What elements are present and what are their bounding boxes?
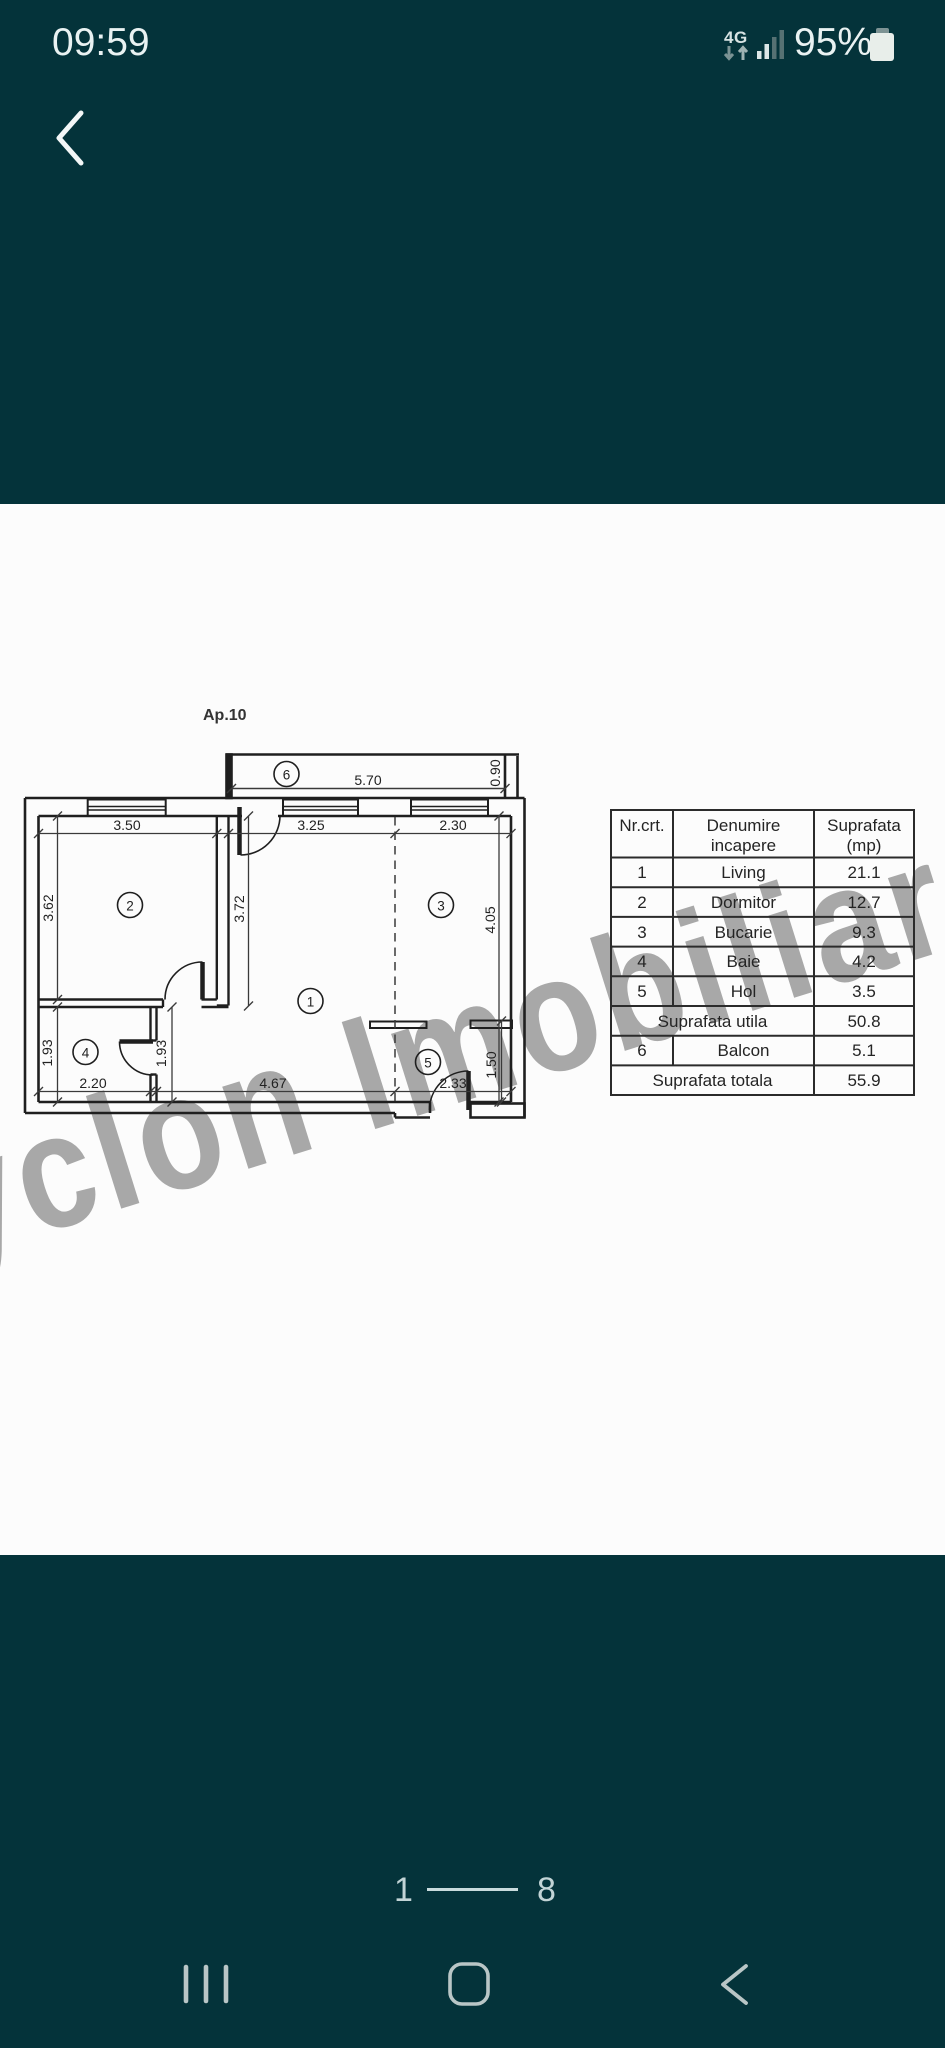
svg-text:4.2: 4.2 xyxy=(852,952,876,971)
svg-text:Bucarie: Bucarie xyxy=(715,923,773,942)
svg-text:Suprafata: Suprafata xyxy=(827,816,901,835)
svg-text:5.1: 5.1 xyxy=(852,1041,876,1060)
svg-text:1: 1 xyxy=(307,995,315,1010)
svg-text:21.1: 21.1 xyxy=(847,863,880,882)
svg-text:Living: Living xyxy=(721,863,765,882)
svg-text:4.05: 4.05 xyxy=(482,906,498,933)
svg-text:2: 2 xyxy=(126,899,134,914)
svg-text:3.50: 3.50 xyxy=(113,817,140,833)
svg-text:3.25: 3.25 xyxy=(297,817,324,833)
svg-text:9.3: 9.3 xyxy=(852,923,876,942)
svg-text:(mp): (mp) xyxy=(847,836,882,855)
svg-text:6: 6 xyxy=(283,768,291,783)
svg-text:3.5: 3.5 xyxy=(852,982,876,1001)
svg-text:3.72: 3.72 xyxy=(231,895,247,922)
svg-text:1: 1 xyxy=(637,863,646,882)
svg-text:6: 6 xyxy=(637,1041,646,1060)
svg-text:4: 4 xyxy=(82,1046,90,1061)
svg-text:5: 5 xyxy=(424,1056,432,1071)
svg-text:50.8: 50.8 xyxy=(847,1012,880,1031)
svg-text:2: 2 xyxy=(637,893,646,912)
svg-text:5: 5 xyxy=(637,982,646,1001)
svg-text:Ap.10: Ap.10 xyxy=(203,707,247,724)
svg-text:3.62: 3.62 xyxy=(40,894,56,921)
svg-text:Suprafata totala: Suprafata totala xyxy=(652,1071,773,1090)
svg-text:Baie: Baie xyxy=(726,952,760,971)
svg-text:1.50: 1.50 xyxy=(483,1051,499,1078)
svg-text:Hol: Hol xyxy=(731,982,757,1001)
svg-text:1.93: 1.93 xyxy=(39,1039,55,1066)
svg-text:2.33: 2.33 xyxy=(439,1075,466,1091)
svg-text:Suprafata utila: Suprafata utila xyxy=(658,1012,768,1031)
svg-text:55.9: 55.9 xyxy=(847,1071,880,1090)
svg-text:incapere: incapere xyxy=(711,836,776,855)
svg-text:2.30: 2.30 xyxy=(439,817,466,833)
svg-text:5.70: 5.70 xyxy=(354,772,381,788)
svg-text:Dormitor: Dormitor xyxy=(711,893,777,912)
svg-text:Balcon: Balcon xyxy=(718,1041,770,1060)
svg-text:2.20: 2.20 xyxy=(79,1075,106,1091)
svg-text:Denumire: Denumire xyxy=(707,816,781,835)
svg-text:3: 3 xyxy=(437,899,445,914)
svg-text:4: 4 xyxy=(637,952,646,971)
svg-text:1.93: 1.93 xyxy=(153,1040,169,1067)
svg-text:12.7: 12.7 xyxy=(847,893,880,912)
svg-text:0.90: 0.90 xyxy=(487,759,503,786)
svg-text:3: 3 xyxy=(637,923,646,942)
svg-text:4.67: 4.67 xyxy=(259,1075,286,1091)
svg-text:Nr.crt.: Nr.crt. xyxy=(619,816,664,835)
